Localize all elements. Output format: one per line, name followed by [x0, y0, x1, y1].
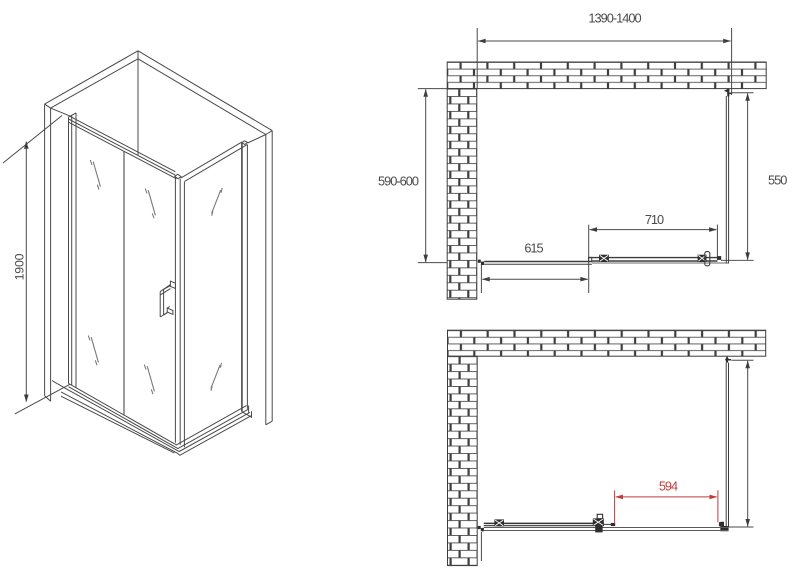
svg-text:590-600: 590-600: [378, 174, 419, 189]
svg-text:594: 594: [659, 478, 678, 493]
svg-text:710: 710: [645, 212, 664, 227]
svg-text:1900: 1900: [12, 253, 26, 280]
svg-text:1390-1400: 1390-1400: [588, 11, 641, 26]
svg-text:550: 550: [768, 173, 787, 188]
svg-text:615: 615: [524, 241, 543, 256]
